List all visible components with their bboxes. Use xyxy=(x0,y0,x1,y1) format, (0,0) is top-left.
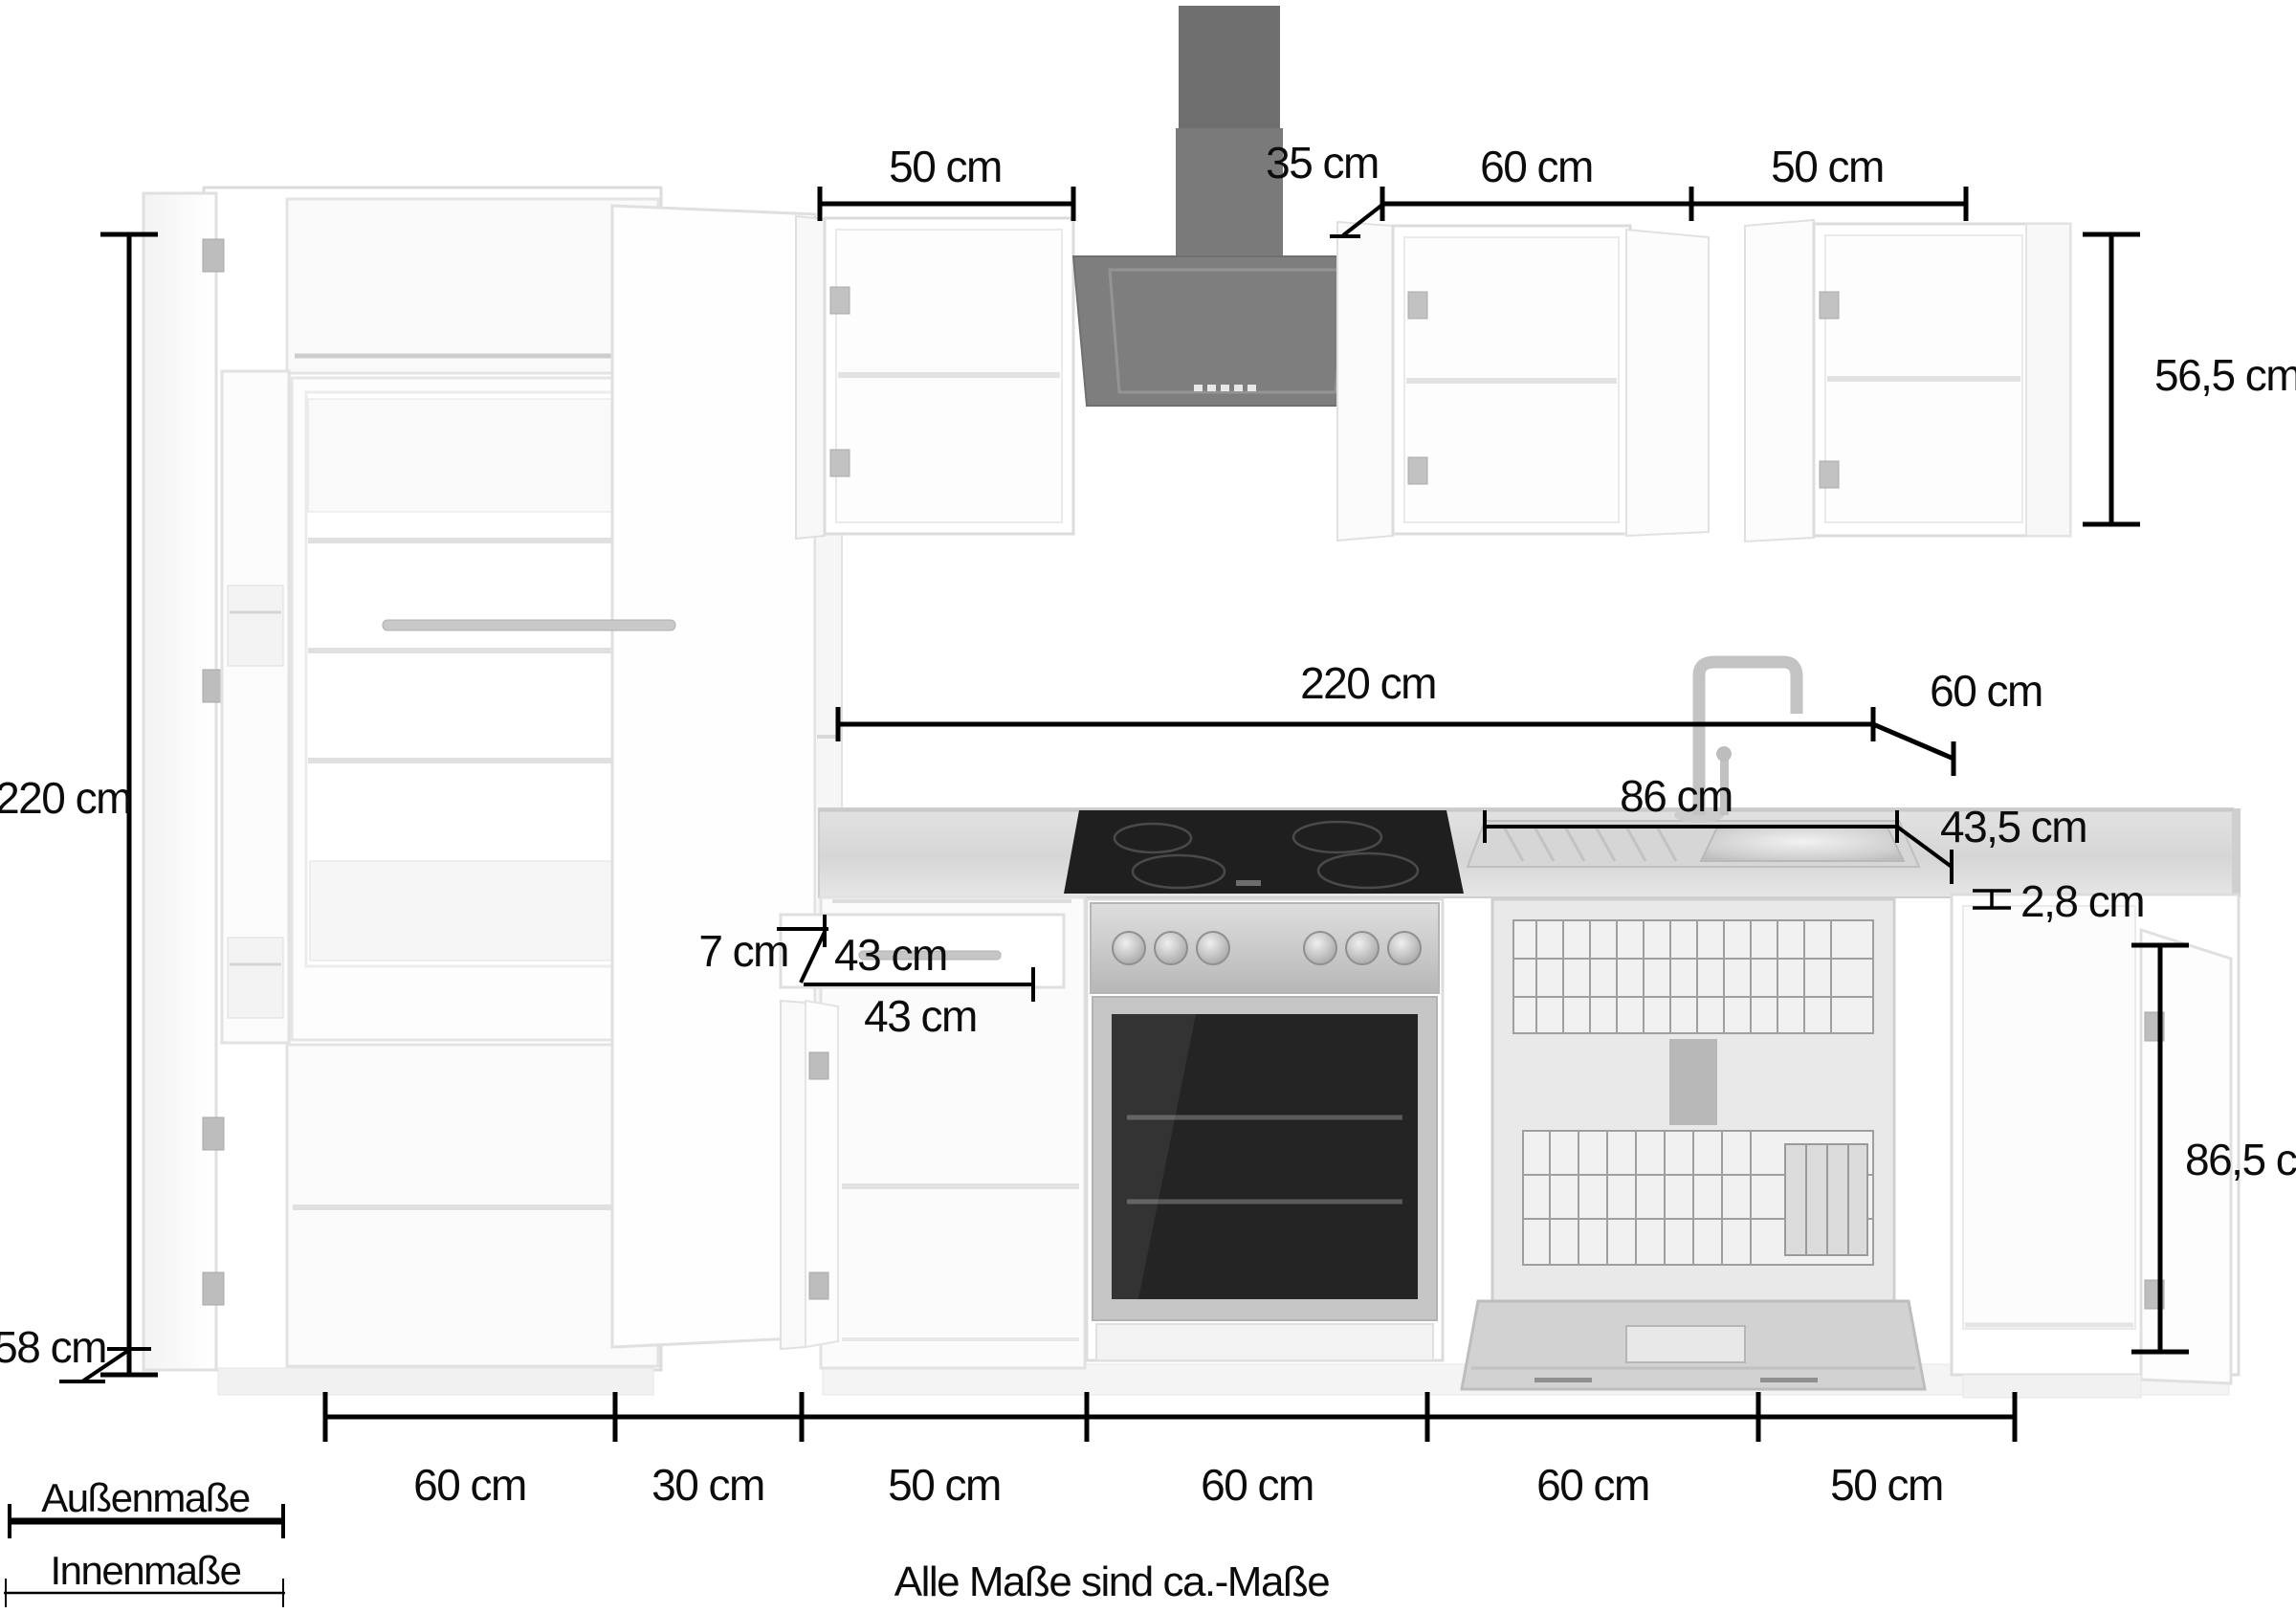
dim-line-worktop-depth xyxy=(1873,724,1954,776)
crisper-drawer xyxy=(310,861,635,961)
hinge-icon xyxy=(1408,457,1427,484)
cutlery-basket xyxy=(1785,1144,1867,1255)
label-scale-seg-1: 60 cm xyxy=(413,1460,526,1510)
wall-cabinet-50-right xyxy=(1745,220,2070,541)
label-scale-seg-2: 30 cm xyxy=(651,1460,764,1510)
open-door xyxy=(1745,220,1814,541)
dishwasher-column xyxy=(1669,1039,1717,1125)
hinge-icon xyxy=(830,450,850,476)
plinth xyxy=(1963,1375,2141,1398)
label-scale-seg-5: 60 cm xyxy=(1536,1460,1649,1510)
label-hood-35: 35 cm xyxy=(1266,138,1379,188)
door-bin xyxy=(228,586,283,666)
label-wall-60: 60 cm xyxy=(1480,142,1593,191)
legend-outer-label: Außenmaße xyxy=(41,1475,250,1520)
label-worktop-depth: 60 cm xyxy=(1930,666,2042,716)
detergent-dispenser xyxy=(1626,1326,1745,1362)
open-door xyxy=(796,216,825,539)
hinge-icon xyxy=(809,1272,828,1299)
wall-cabinet-50-left xyxy=(796,216,1073,539)
ceramic-hob xyxy=(1064,810,1464,894)
handle-bar xyxy=(383,620,675,630)
sink xyxy=(1468,662,1919,867)
fridge-open-door xyxy=(222,371,289,1043)
sink-basin xyxy=(1701,826,1904,861)
hinge-icon xyxy=(1820,461,1839,488)
oven xyxy=(1087,899,1443,1360)
wall-cabinet-60 xyxy=(1337,222,1709,541)
dim-line-wall-60-50 xyxy=(1382,187,1966,221)
footer-note: Alle Maße sind ca.-Maße xyxy=(894,1558,1330,1605)
extractor-hood xyxy=(1073,6,1381,406)
freezer-box xyxy=(308,399,637,512)
hinge-icon xyxy=(830,287,850,314)
hinge-icon xyxy=(1820,292,1839,319)
dim-line-bottom-scale xyxy=(325,1392,2015,1442)
plinth xyxy=(218,1368,653,1395)
dim-line-wall-height xyxy=(2083,234,2140,524)
hinge-icon xyxy=(809,1052,828,1079)
label-scale-seg-3: 50 cm xyxy=(888,1460,1001,1510)
label-scale-seg-6: 50 cm xyxy=(1830,1460,1943,1510)
hinge-icon xyxy=(1408,292,1427,319)
label-sink-86: 86 cm xyxy=(1620,771,1733,821)
kitchen-line-artwork xyxy=(143,6,2241,1398)
label-wall-50-right: 50 cm xyxy=(1771,142,1884,191)
label-left-height: 220 cm xyxy=(0,773,131,823)
dim-line-run-220 xyxy=(838,707,1873,741)
label-base-height: 86,5 cm xyxy=(2185,1135,2296,1184)
label-wall-50-left: 50 cm xyxy=(889,142,1002,191)
tall-unit-fridge xyxy=(143,188,661,1395)
label-thickness: 2,8 cm xyxy=(2020,876,2144,926)
kitchen-dimension-diagram: 220 cm 58 cm 50 cm 35 cm 60 cm 50 cm 56,… xyxy=(0,0,2296,1613)
dim-line-wall-50-left xyxy=(820,187,1073,221)
fridge-interior xyxy=(292,378,655,1040)
label-drawer-depth: 43 cm xyxy=(834,930,947,980)
tall-unit-open-door xyxy=(143,193,216,1370)
label-drawer-front: 7 cm xyxy=(698,926,788,976)
label-run-220: 220 cm xyxy=(1300,658,1436,708)
label-drawer-width: 43 cm xyxy=(864,991,977,1041)
label-depth-58: 58 cm xyxy=(0,1322,106,1372)
door-bin xyxy=(228,938,283,1018)
dishwasher-upper-rack xyxy=(1513,920,1873,1033)
open-door xyxy=(1626,230,1709,536)
label-scale-seg-4: 60 cm xyxy=(1201,1460,1314,1510)
label-sink-depth: 43,5 cm xyxy=(1940,802,2086,851)
open-door xyxy=(1337,222,1393,541)
legend-inner-label: Innenmaße xyxy=(51,1548,241,1593)
label-wall-height: 56,5 cm xyxy=(2154,350,2296,400)
dishwasher-open xyxy=(1462,899,1925,1389)
open-door xyxy=(781,1001,806,1349)
